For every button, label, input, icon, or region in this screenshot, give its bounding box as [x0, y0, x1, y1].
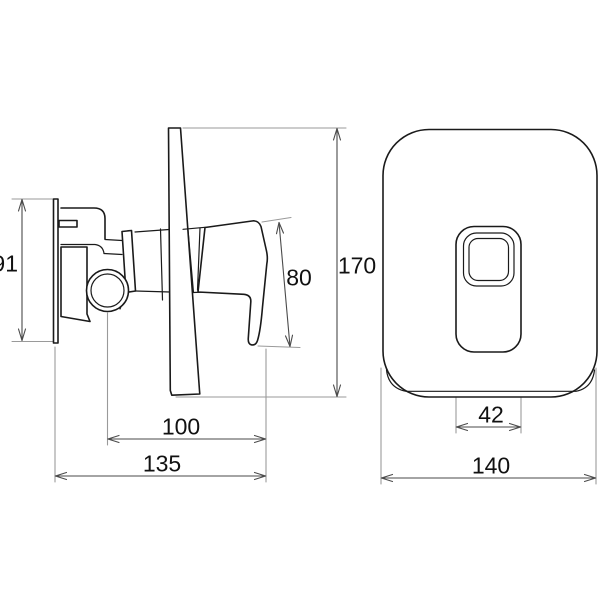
drawing-page: 91 80 170 100 135 42 140 — [0, 0, 600, 600]
dim-label-80: 80 — [286, 265, 312, 291]
handle-capsule — [456, 227, 521, 353]
lower-valve-body — [61, 247, 90, 322]
handle-grip — [198, 221, 267, 345]
ext-80-bottom — [258, 346, 300, 348]
front-view-cover-plate — [383, 130, 597, 398]
escutcheon-rear-edge — [161, 229, 163, 300]
dim-label-170: 170 — [338, 253, 376, 279]
dim-label-42: 42 — [478, 402, 504, 428]
block-notch — [59, 221, 77, 228]
inlet-pipe-bottom — [104, 254, 122, 255]
side-view-mixer — [54, 128, 268, 395]
dim-label-91: 91 — [0, 251, 18, 277]
inlet-pipe-top — [105, 240, 122, 241]
ext-80-top — [262, 218, 291, 223]
dim-label-100: 100 — [162, 414, 200, 440]
cover-plate-edge-blade — [169, 128, 200, 395]
technical-drawing-canvas: 91 80 170 100 135 42 140 — [0, 0, 600, 600]
dim-label-140: 140 — [472, 453, 510, 479]
valve-neck-bottom — [136, 291, 171, 292]
dim-label-135: 135 — [143, 451, 181, 477]
wall-mounting-plate — [54, 199, 59, 343]
valve-neck-top — [135, 230, 169, 233]
valve-cap-outer-circle — [87, 270, 129, 312]
